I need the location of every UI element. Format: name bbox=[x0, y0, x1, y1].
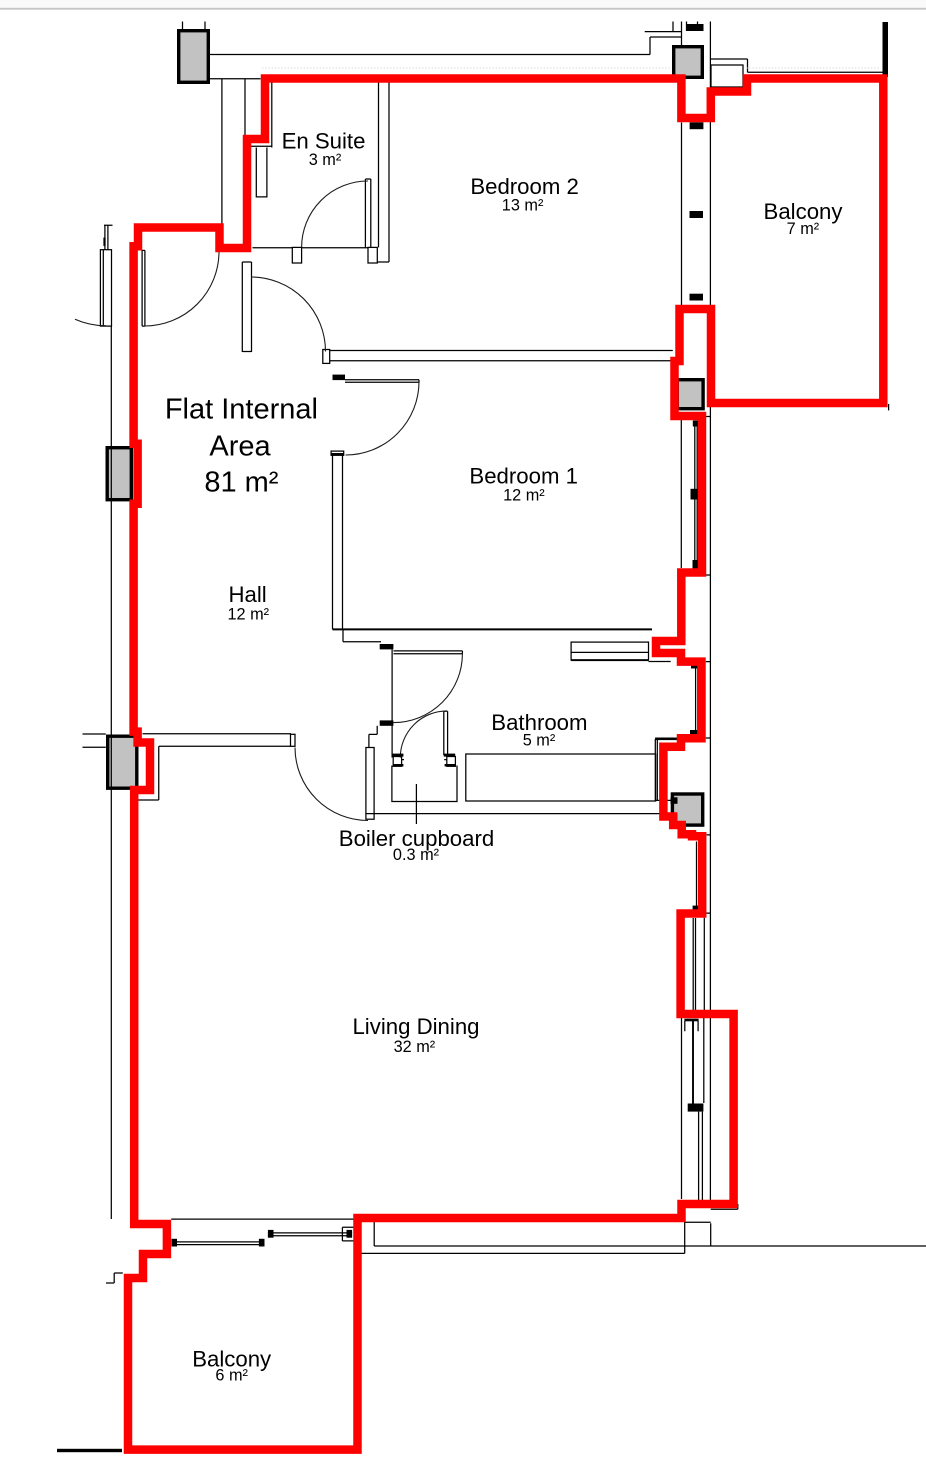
svg-text:En Suite: En Suite bbox=[282, 128, 366, 153]
svg-text:5 m²: 5 m² bbox=[523, 732, 556, 750]
svg-text:3 m²: 3 m² bbox=[309, 151, 342, 169]
svg-text:81 m²: 81 m² bbox=[204, 467, 278, 499]
svg-text:Hall: Hall bbox=[228, 582, 266, 607]
svg-text:Bedroom 1: Bedroom 1 bbox=[469, 464, 578, 489]
svg-text:6 m²: 6 m² bbox=[215, 1367, 248, 1385]
svg-text:0.3 m²: 0.3 m² bbox=[393, 846, 440, 864]
svg-text:Flat Internal: Flat Internal bbox=[165, 394, 318, 426]
svg-text:7 m²: 7 m² bbox=[787, 220, 820, 238]
svg-text:12 m²: 12 m² bbox=[503, 487, 545, 505]
svg-text:12 m²: 12 m² bbox=[227, 606, 269, 624]
svg-text:13 m²: 13 m² bbox=[502, 197, 544, 215]
svg-text:32 m²: 32 m² bbox=[394, 1038, 436, 1056]
svg-text:Area: Area bbox=[209, 431, 271, 463]
svg-text:Bedroom 2: Bedroom 2 bbox=[470, 174, 579, 199]
svg-text:Living Dining: Living Dining bbox=[352, 1014, 479, 1039]
